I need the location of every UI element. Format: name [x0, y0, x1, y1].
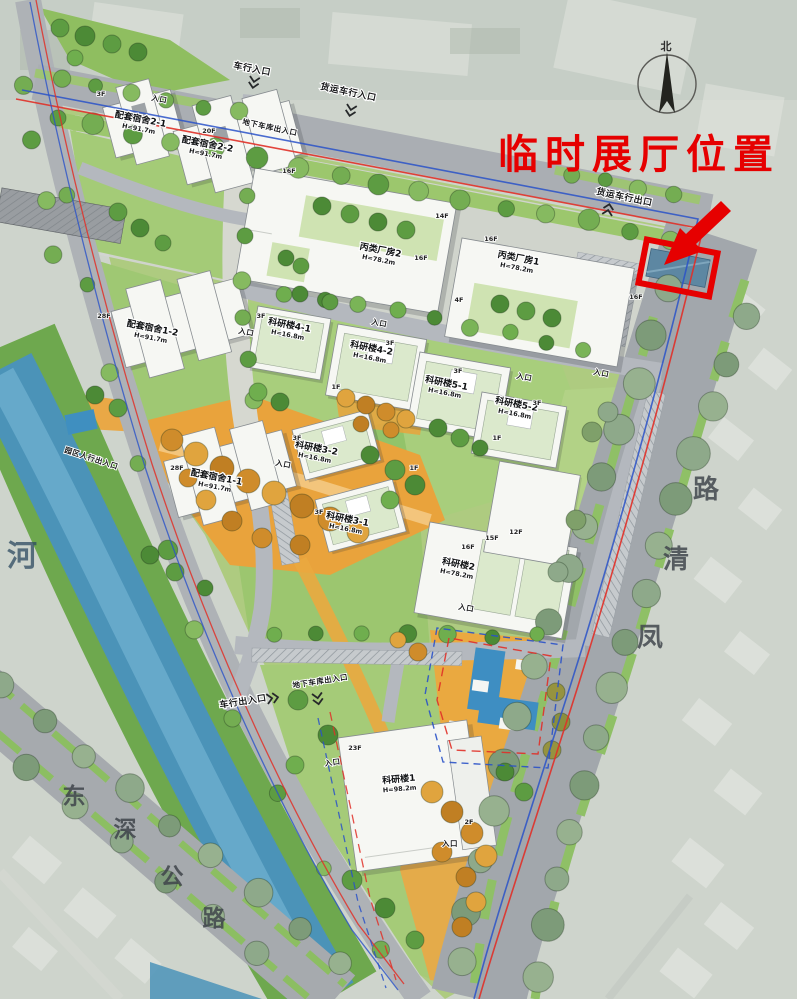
tree: [239, 188, 255, 204]
tree: [235, 310, 251, 326]
tree: [397, 221, 415, 239]
tree: [521, 653, 547, 679]
tree: [385, 460, 405, 480]
tree: [329, 952, 352, 975]
tree: [517, 302, 535, 320]
tree: [249, 383, 267, 401]
tree: [103, 35, 121, 53]
dongshen-char-1: 东: [63, 783, 86, 810]
tree: [129, 43, 147, 61]
tree: [666, 186, 682, 202]
tree: [515, 783, 533, 801]
tree: [290, 535, 310, 555]
dongshen-char-4: 路: [203, 905, 227, 932]
floor-label: 3F: [315, 508, 324, 516]
tree: [109, 399, 127, 417]
tree: [337, 389, 355, 407]
fengqing-char-3: 路: [693, 474, 720, 505]
tree: [357, 396, 375, 414]
tree: [699, 392, 728, 421]
tree: [733, 303, 759, 329]
floor-label: 3F: [454, 367, 463, 375]
tree: [596, 672, 627, 703]
floor-label: 3F: [533, 399, 542, 407]
tree: [660, 483, 693, 516]
tree: [537, 205, 555, 223]
tree: [116, 774, 145, 803]
tree: [472, 440, 488, 456]
floor-label: 2F: [465, 818, 474, 826]
tree: [222, 511, 242, 531]
floor-label: 16F: [414, 254, 428, 262]
site-plan-map: 凤 清 路 东 深 公 路 河 车行入口 货运车行入口 地下车库出入口 货运车行…: [0, 0, 797, 999]
dongshen-char-2: 深: [114, 817, 137, 843]
tree: [409, 181, 429, 201]
tree: [441, 801, 463, 823]
tree: [548, 562, 568, 582]
tree: [240, 351, 256, 367]
tree: [109, 203, 127, 221]
tree: [557, 820, 582, 845]
tree: [233, 272, 251, 290]
tree: [308, 626, 323, 641]
tree: [530, 627, 544, 641]
tree: [51, 19, 69, 37]
tree: [75, 26, 95, 46]
tree: [72, 745, 95, 768]
floor-label: 4F: [455, 296, 464, 304]
tree: [427, 310, 442, 325]
floor-label: 3F: [97, 90, 106, 98]
tree: [322, 294, 338, 310]
tree: [531, 909, 564, 942]
floor-label: 3F: [257, 312, 266, 320]
tree: [185, 621, 203, 639]
tree: [566, 510, 586, 530]
tree: [375, 898, 395, 918]
tree: [479, 796, 509, 826]
tree: [368, 174, 389, 195]
tree: [53, 70, 70, 87]
entrance-label: 入口: [441, 839, 458, 848]
tree: [82, 113, 104, 135]
tree: [350, 296, 366, 312]
tree: [622, 223, 639, 240]
tree: [503, 324, 519, 340]
tree: [714, 352, 739, 377]
tree: [451, 429, 469, 447]
tree: [44, 246, 62, 264]
tree: [578, 209, 599, 230]
tree: [86, 386, 104, 404]
tree: [155, 235, 171, 251]
tree: [523, 962, 553, 992]
fengqing-char-1: 凤: [637, 623, 663, 653]
tree: [237, 228, 253, 244]
tree: [278, 250, 294, 266]
tree: [252, 528, 272, 548]
site-plan-screenshot: 凤 清 路 东 深 公 路 河 车行入口 货运车行入口 地下车库出入口 货运车行…: [0, 0, 797, 999]
tree: [353, 416, 369, 432]
tree: [197, 580, 213, 596]
tree: [583, 725, 608, 750]
tree: [598, 402, 618, 422]
tree: [369, 213, 387, 231]
tree: [13, 754, 39, 780]
floor-label: 28F: [170, 464, 184, 472]
floor-label: 1F: [493, 434, 502, 442]
tree: [461, 319, 478, 336]
tree: [246, 147, 268, 169]
tree: [341, 205, 359, 223]
tree: [381, 491, 399, 509]
tree: [131, 219, 149, 237]
floor-label: 20F: [202, 127, 216, 135]
tree: [262, 481, 286, 505]
floor-label: 16F: [282, 167, 296, 175]
floor-label: 15F: [485, 534, 499, 542]
tree: [313, 197, 331, 215]
tree: [67, 50, 83, 66]
tree: [545, 867, 569, 891]
tree: [570, 771, 599, 800]
floor-label: 16F: [484, 235, 498, 243]
tree: [677, 437, 711, 471]
tree: [196, 100, 211, 115]
tree: [390, 632, 406, 648]
tree: [288, 690, 308, 710]
floor-label: 12F: [509, 528, 523, 536]
tree: [162, 133, 180, 151]
tree: [159, 815, 181, 837]
tree: [632, 579, 660, 607]
tree: [429, 419, 447, 437]
tree: [582, 422, 602, 442]
tree: [456, 867, 476, 887]
tree: [286, 756, 304, 774]
tree: [448, 948, 476, 976]
tree: [141, 546, 159, 564]
tree: [623, 368, 655, 400]
tree: [332, 167, 350, 185]
tree: [245, 941, 269, 965]
tree: [161, 429, 183, 451]
tree: [224, 710, 241, 727]
tree: [293, 258, 309, 274]
compass-north-label: 北: [661, 39, 672, 53]
tree: [38, 192, 56, 210]
tree: [276, 287, 292, 303]
tree: [543, 309, 561, 327]
tree: [267, 627, 282, 642]
tree: [244, 878, 273, 907]
tree: [184, 442, 208, 466]
river-label: 河: [7, 539, 37, 574]
tree: [397, 410, 415, 428]
tree: [485, 630, 500, 645]
tree: [23, 131, 41, 149]
tree: [405, 475, 425, 495]
tree: [503, 702, 531, 730]
tree: [636, 320, 666, 350]
tree: [292, 286, 308, 302]
tree: [587, 463, 615, 491]
floor-label: 3F: [293, 434, 302, 442]
tree: [475, 845, 497, 867]
tree: [491, 295, 509, 313]
tree: [576, 342, 591, 357]
floor-label: 1F: [332, 383, 341, 391]
tree: [33, 709, 57, 733]
tree: [450, 190, 470, 210]
tree: [361, 446, 379, 464]
tree: [290, 494, 314, 518]
fengqing-char-2: 清: [663, 545, 689, 575]
tree: [390, 302, 406, 318]
tree: [439, 625, 457, 643]
tree: [289, 918, 312, 941]
tree: [612, 629, 638, 655]
floor-label: 3F: [386, 339, 395, 347]
tree: [377, 403, 395, 421]
tree: [271, 393, 289, 411]
floor-label: 1F: [410, 464, 419, 472]
tree: [198, 843, 223, 868]
annotation-text: 临时展厅位置: [498, 132, 780, 178]
tree: [123, 84, 140, 101]
tree: [409, 643, 427, 661]
tree: [158, 540, 178, 560]
tree: [354, 626, 369, 641]
tree: [421, 781, 443, 803]
floor-label: 16F: [461, 543, 475, 551]
tree: [196, 490, 216, 510]
tree: [383, 422, 399, 438]
tree: [406, 931, 424, 949]
tree: [539, 335, 554, 350]
dongshen-char-3: 公: [161, 864, 184, 890]
floor-label: 14F: [435, 212, 449, 220]
floor-label: 28F: [97, 312, 111, 320]
tree: [498, 201, 514, 217]
tree: [452, 917, 472, 937]
tree: [466, 892, 486, 912]
floor-label: 23F: [348, 744, 362, 752]
floor-label: 16F: [629, 293, 643, 301]
